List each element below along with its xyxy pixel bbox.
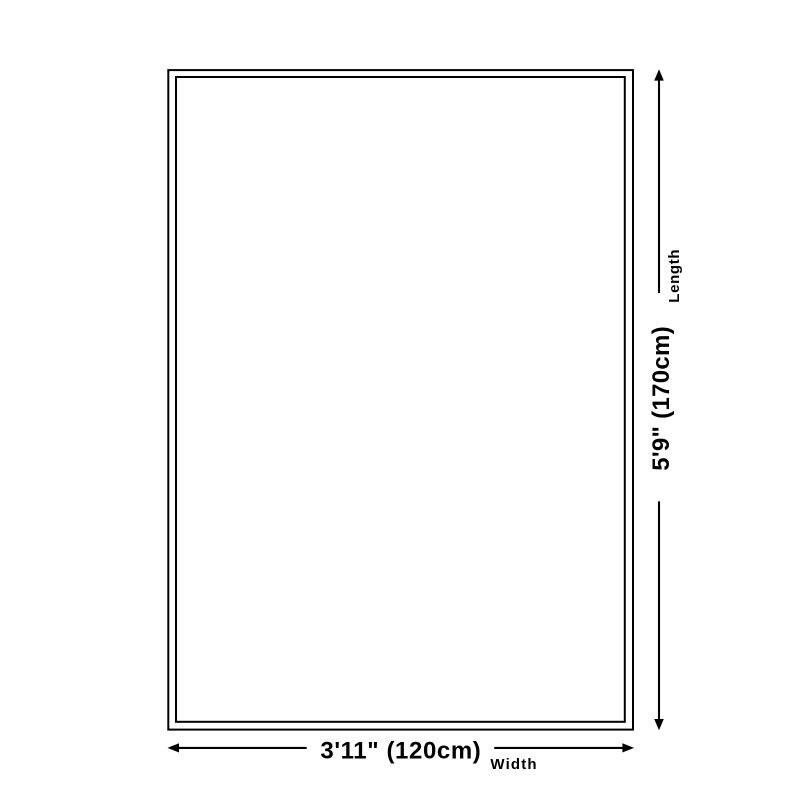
svg-text:3'11" (120cm): 3'11" (120cm) <box>320 738 481 765</box>
svg-text:Length: Length <box>666 249 683 303</box>
svg-text:Width: Width <box>490 756 537 773</box>
svg-text:5'9" (170cm): 5'9" (170cm) <box>648 326 675 471</box>
